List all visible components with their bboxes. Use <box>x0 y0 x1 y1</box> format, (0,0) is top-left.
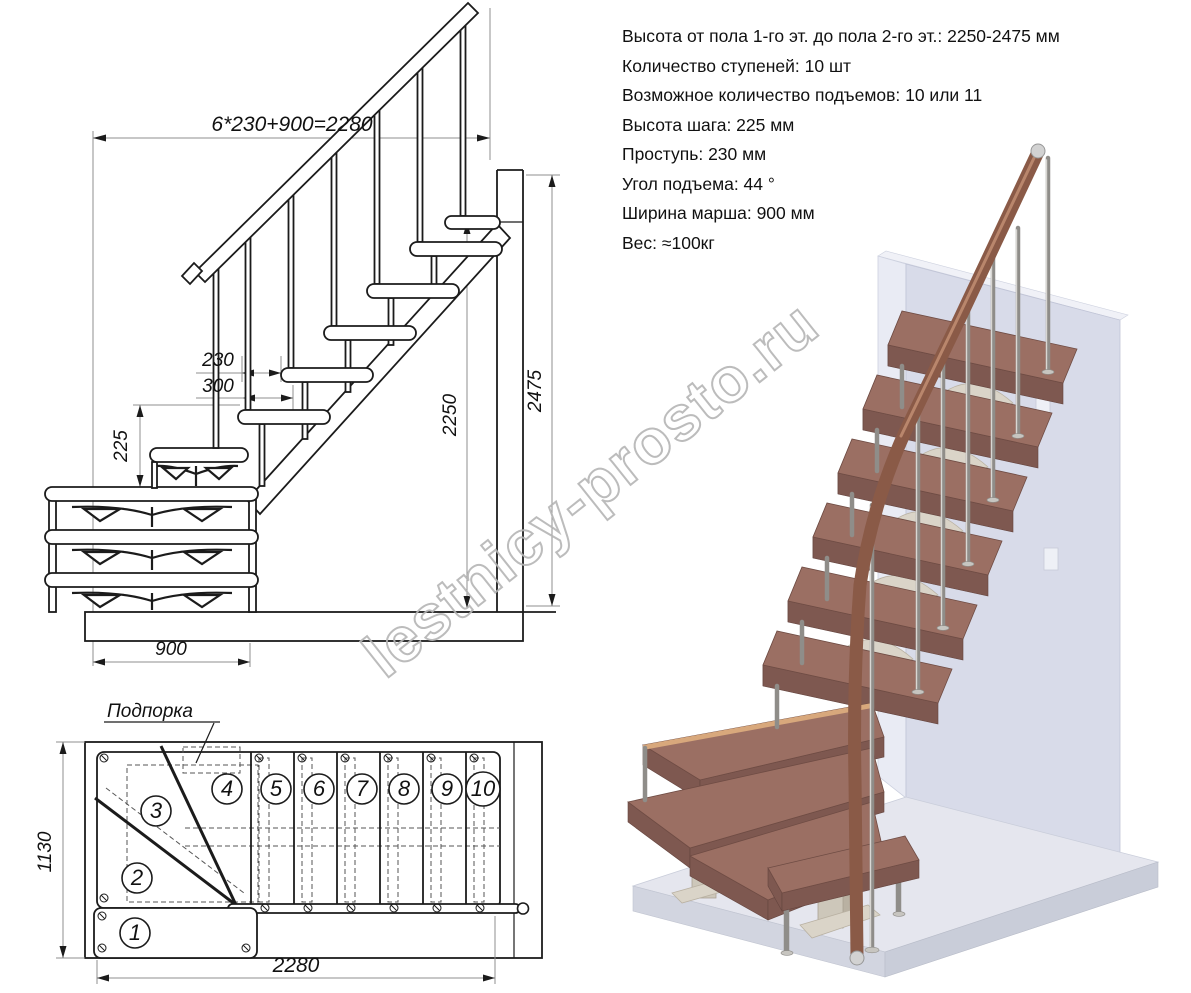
spec-line-tread: Проступь: 230 мм <box>622 140 1187 170</box>
spec-line-step-count: Количество ступеней: 10 шт <box>622 52 1187 82</box>
elevation-view-drawing: 6*230+900=2280 230 300 225 2250 2475 900 <box>30 0 590 690</box>
spec-line-rise-count: Возможное количество подъемов: 10 или 11 <box>622 81 1187 111</box>
plan-support-label: Подпорка <box>107 701 193 722</box>
plan-step-number: 7 <box>356 776 369 801</box>
plan-rail <box>228 903 529 914</box>
dim-floor-height-label: 2250 <box>440 393 461 437</box>
plan-step1-block <box>94 908 257 958</box>
plan-dim-depth-label: 1130 <box>35 831 56 872</box>
plan-step-number: 3 <box>150 798 163 823</box>
plan-step-number: 2 <box>130 865 143 890</box>
screenshot-root: 6*230+900=2280 230 300 225 2250 2475 900 <box>0 0 1191 993</box>
plan-view-drawing: 1 2 3 4 5 6 7 8 9 10 1130 2280 Подпорка <box>25 690 580 993</box>
spec-line-angle: Угол подъема: 44 ° <box>622 170 1187 200</box>
plan-step-number: 8 <box>398 776 411 801</box>
spec-line-step-height: Высота шага: 225 мм <box>622 111 1187 141</box>
spec-line-march-width: Ширина марша: 900 мм <box>622 199 1187 229</box>
dim-total-height-label: 2475 <box>525 369 546 413</box>
dim-step-overlap-label: 300 <box>202 376 234 397</box>
dim-march-width-label: 900 <box>155 639 187 660</box>
plan-structure <box>85 722 542 958</box>
elevation-structure <box>45 3 556 641</box>
plan-step-number: 6 <box>313 776 326 801</box>
specs-block: Высота от пола 1-го эт. до пола 2-го эт.… <box>622 22 1187 258</box>
floor-slab <box>85 612 523 641</box>
spec-line-floor-height: Высота от пола 1-го эт. до пола 2-го эт.… <box>622 22 1187 52</box>
plan-dim-length-label: 2280 <box>272 954 320 977</box>
plan-step-number: 10 <box>471 776 496 801</box>
plan-step-number: 5 <box>270 776 283 801</box>
spec-line-weight: Вес: ≈100кг <box>622 229 1187 259</box>
dim-tread-depth-label: 230 <box>201 350 234 371</box>
plan-step-number: 9 <box>441 776 453 801</box>
handrail-bottom-cap <box>850 951 864 965</box>
dim-riser-height-label: 225 <box>111 430 132 463</box>
plan-step-number: 1 <box>129 920 141 945</box>
dim-total-run-label: 6*230+900=2280 <box>211 113 372 136</box>
plan-step-number: 4 <box>221 776 233 801</box>
